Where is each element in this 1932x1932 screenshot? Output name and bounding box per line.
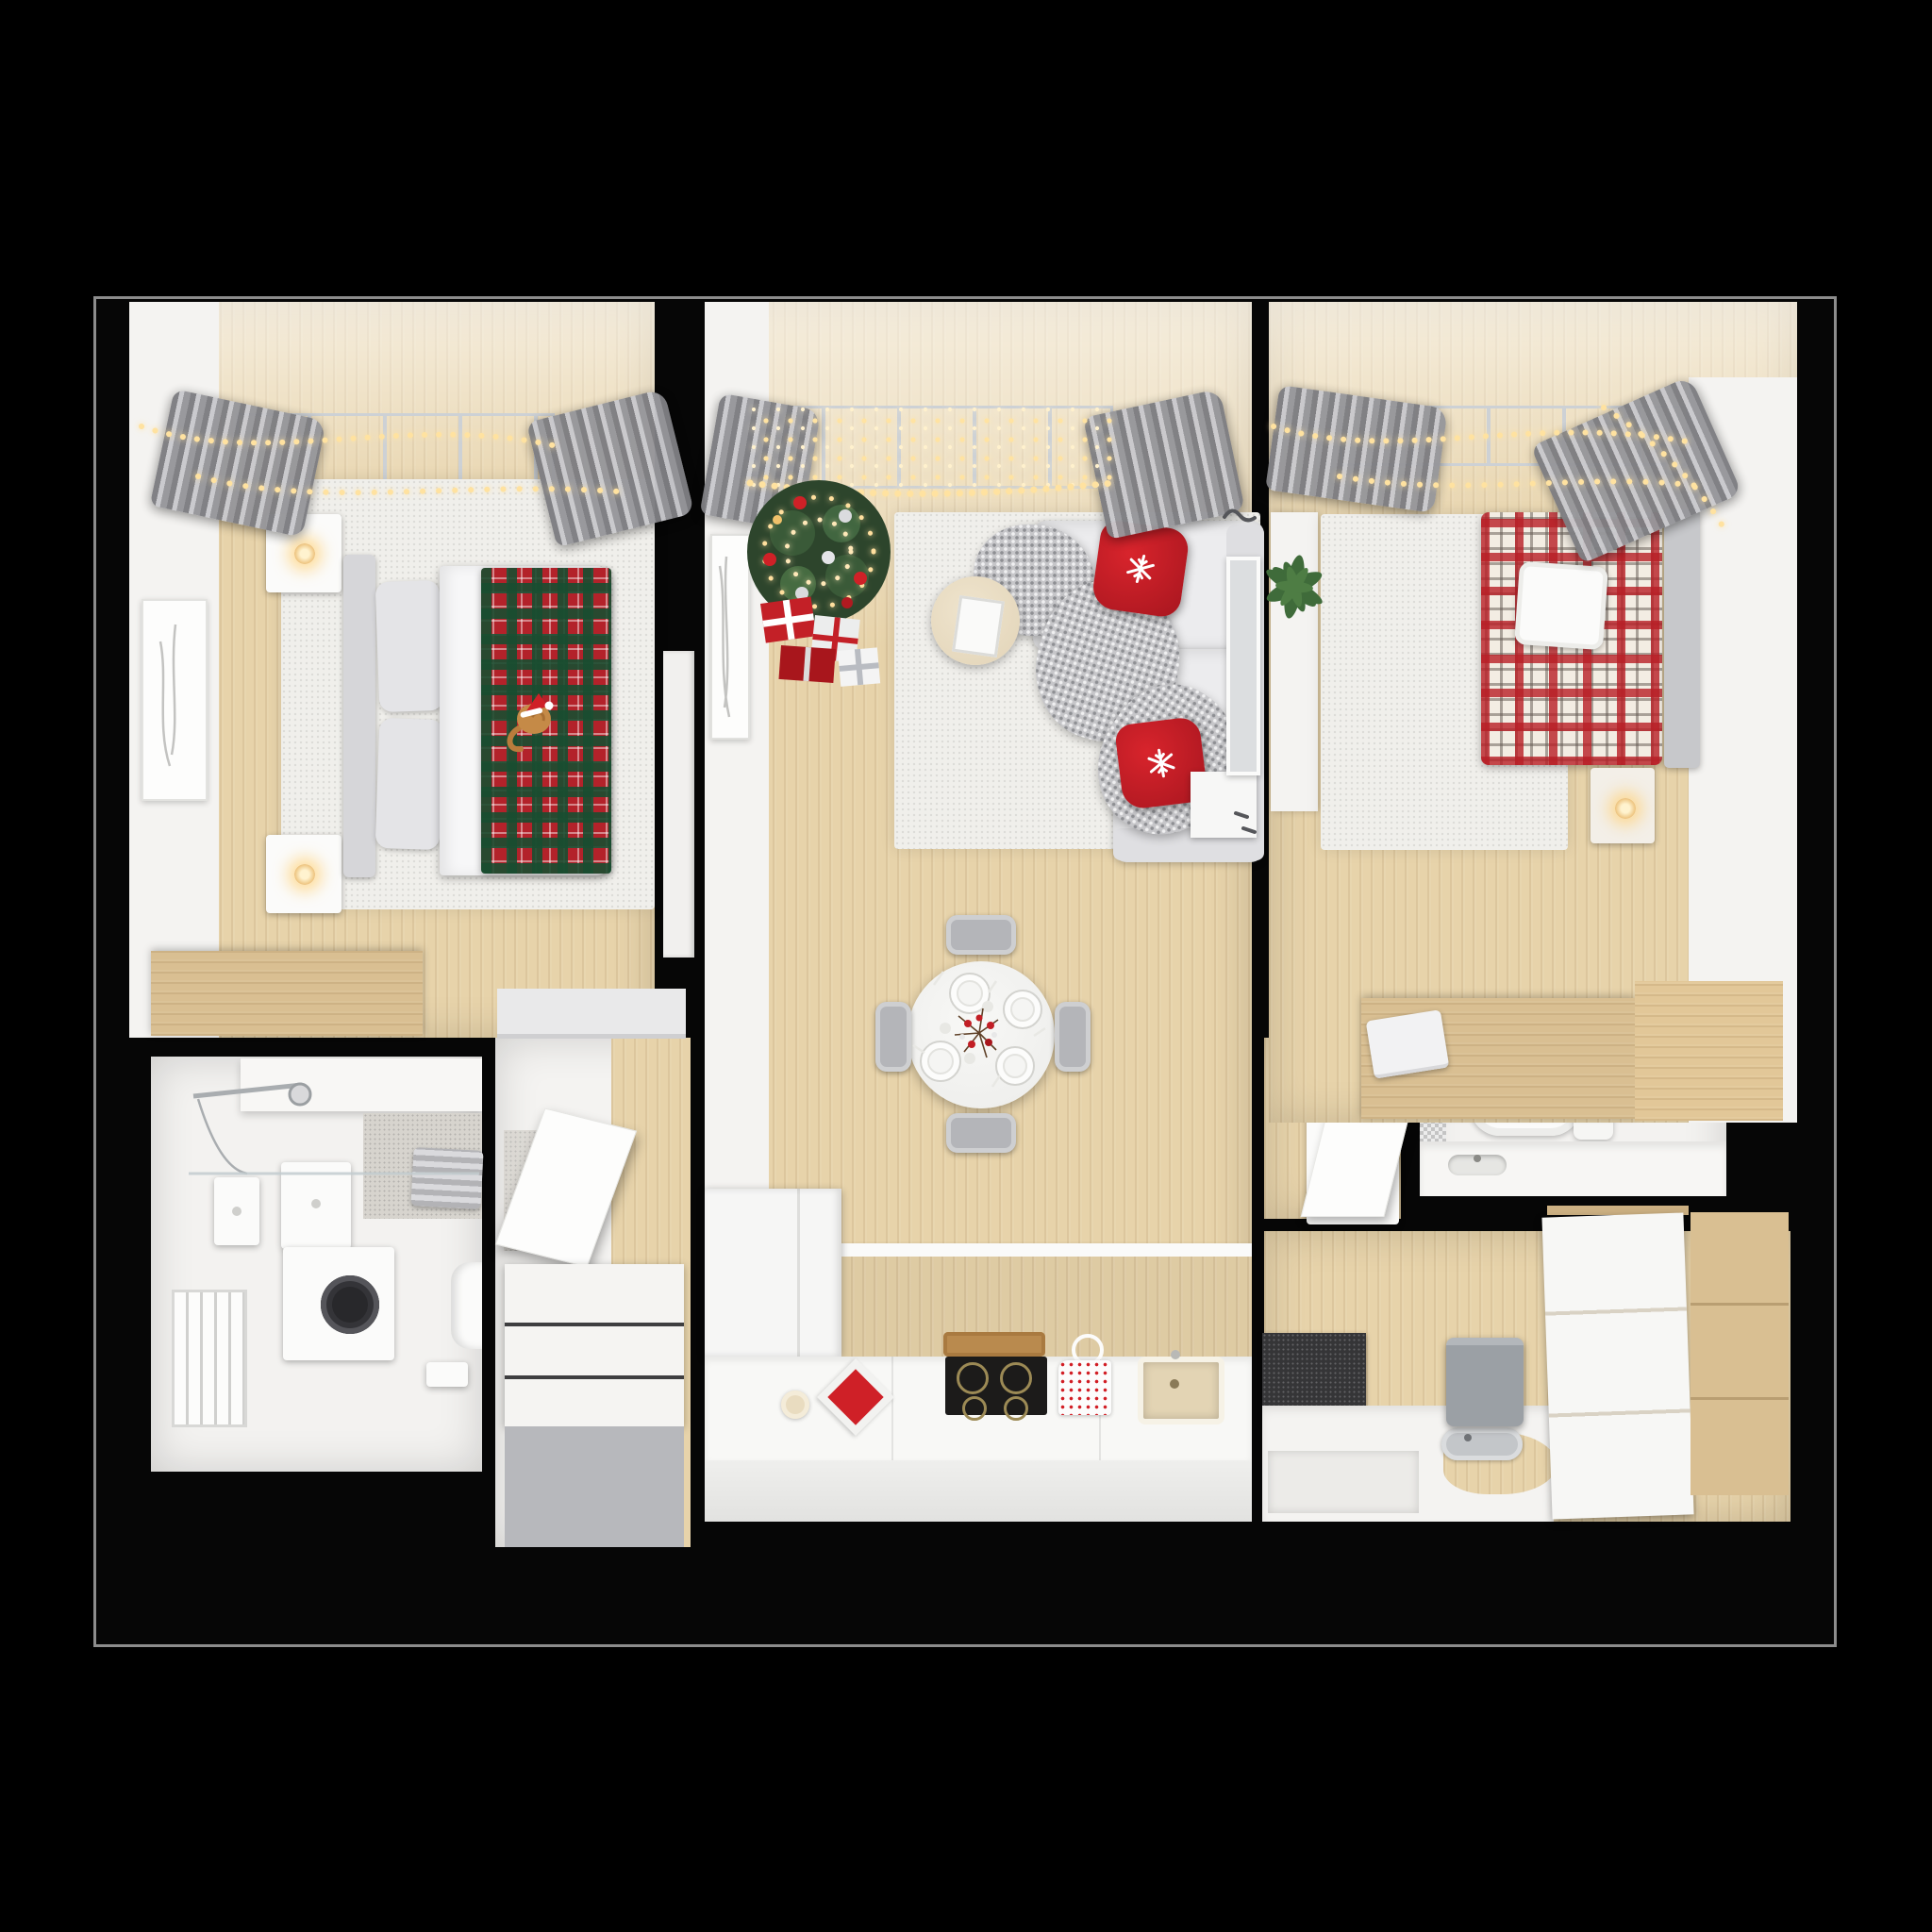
shower-towels [410, 1147, 483, 1209]
sink-drain [1170, 1379, 1179, 1389]
dining-table [908, 961, 1055, 1108]
kitchen-sink [1138, 1357, 1224, 1424]
cooktop-ring-4 [1004, 1396, 1028, 1421]
kitchen-counter-front [705, 1460, 1252, 1522]
bed-2-headboard [1664, 509, 1700, 768]
leaning-mirror [1226, 557, 1260, 775]
drawer-unit [1541, 1212, 1693, 1519]
red-snowflake-pillow-1 [1091, 519, 1191, 619]
oval-basin [1441, 1428, 1523, 1460]
bath-1-wall-cabinet-a [214, 1177, 259, 1245]
cooktop-ring-2 [1000, 1362, 1032, 1394]
bathroom-1-shelf [241, 1058, 482, 1111]
paper-holder [426, 1362, 468, 1387]
wood-cabinet-column [1690, 1212, 1789, 1495]
bedroom-1-art-frame [142, 599, 208, 801]
dining-chair-bottom [946, 1113, 1016, 1153]
bed-1-pillow-a [375, 580, 444, 712]
cooktop-ring-3 [962, 1396, 987, 1421]
sideboard [1191, 772, 1257, 838]
bedroom-2-wardrobe-column [1271, 512, 1318, 811]
polka-dot-towel [1058, 1360, 1111, 1415]
cooktop-ring-1 [957, 1362, 989, 1394]
towel-radiator [172, 1290, 247, 1427]
shoe-bench-top [505, 1264, 684, 1426]
ceramic-plate [781, 1391, 809, 1419]
bath-2-recessed-tray [1268, 1451, 1419, 1513]
bedroom-2-desk-return [1635, 981, 1783, 1121]
wc-sink-slot [1448, 1155, 1507, 1175]
coffee-table-photo-frame [952, 595, 1005, 658]
bath-1-wall-cabinet-b [281, 1162, 351, 1249]
floorplan-scene [0, 0, 1932, 1932]
dining-chair-top [946, 915, 1016, 955]
candle-bottom [294, 864, 315, 885]
kitchen-ledge [840, 1243, 1252, 1257]
living-curtain-left [700, 393, 822, 532]
bedroom-1-door [663, 651, 694, 958]
wooden-tray [943, 1332, 1045, 1357]
washing-machine-door [321, 1275, 379, 1334]
laundry-bin [1446, 1338, 1524, 1426]
closet-top [497, 989, 686, 1039]
bed-1-pillow-b [375, 718, 444, 850]
bedroom-1-desk [151, 951, 423, 1036]
laptop [1366, 1009, 1450, 1079]
bed-1-headboard [343, 555, 375, 877]
bath-1-toilet [451, 1262, 482, 1349]
candle-top [294, 543, 315, 564]
bed-1-tartan-throw [481, 568, 611, 874]
bedroom-2-candle [1615, 798, 1636, 819]
dining-chair-right [1055, 1002, 1091, 1072]
shoe-bench-front [505, 1426, 684, 1547]
living-art-frame [710, 534, 750, 740]
fridge-cabinet [705, 1189, 841, 1357]
bed-2-pillow [1514, 561, 1608, 650]
dining-chair-left [875, 1002, 911, 1072]
kitchen-backsplash [840, 1257, 1252, 1357]
